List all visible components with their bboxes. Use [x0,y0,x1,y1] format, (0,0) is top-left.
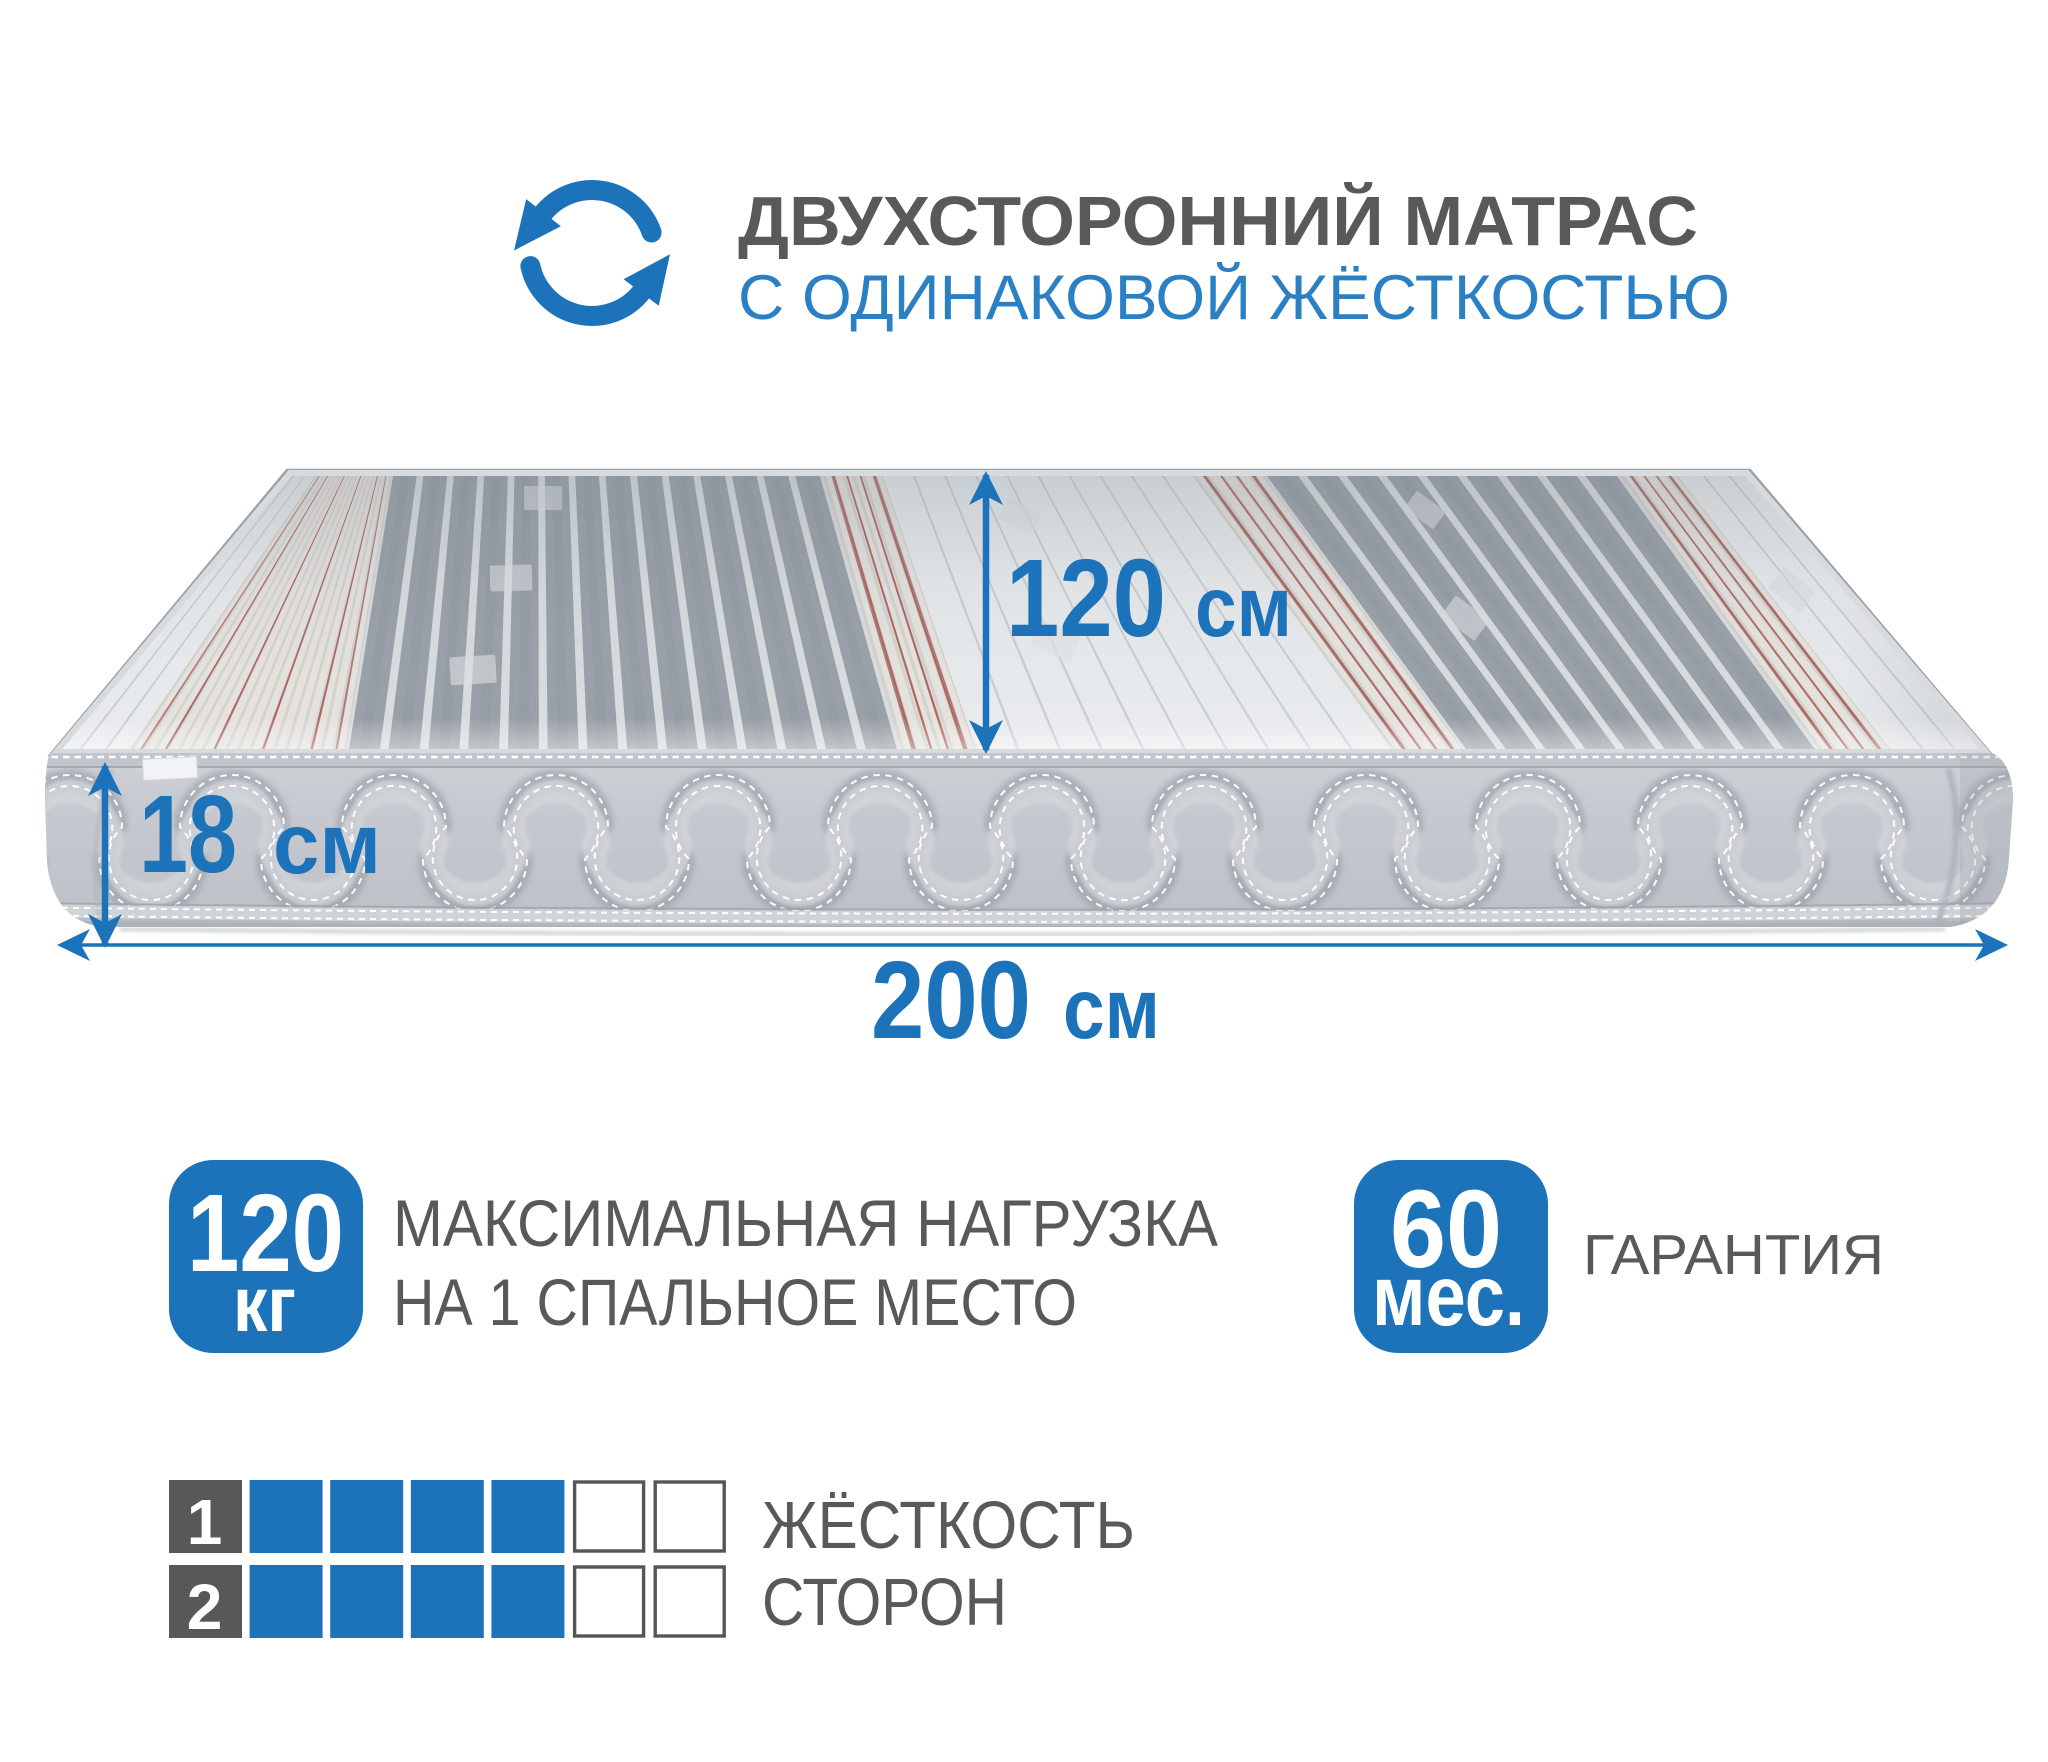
svg-text:120: 120 [1006,537,1166,660]
svg-text:ДВУХСТОРОННИЙ МАТРАС: ДВУХСТОРОННИЙ МАТРАС [738,181,1698,260]
svg-text:см: см [1063,962,1160,1057]
svg-text:18: 18 [139,773,237,896]
svg-text:200: 200 [871,939,1031,1062]
svg-text:МАКСИМАЛЬНАЯ НАГРУЗКА: МАКСИМАЛЬНАЯ НАГРУЗКА [393,1186,1218,1260]
svg-text:2: 2 [187,1571,223,1643]
svg-text:СТОРОН: СТОРОН [762,1565,1007,1640]
svg-text:С ОДИНАКОВОЙ ЖЁСТКОСТЬЮ: С ОДИНАКОВОЙ ЖЁСТКОСТЬЮ [738,262,1730,333]
svg-text:см: см [273,797,381,892]
svg-text:НА 1 СПАЛЬНОЕ МЕСТО: НА 1 СПАЛЬНОЕ МЕСТО [393,1265,1077,1339]
svg-text:ЖЁСТКОСТЬ: ЖЁСТКОСТЬ [762,1488,1135,1563]
svg-text:мес.: мес. [1372,1249,1525,1344]
svg-text:см: см [1195,560,1292,655]
svg-text:1: 1 [187,1486,223,1558]
svg-text:кг: кг [233,1260,296,1348]
svg-text:ГАРАНТИЯ: ГАРАНТИЯ [1583,1223,1884,1287]
